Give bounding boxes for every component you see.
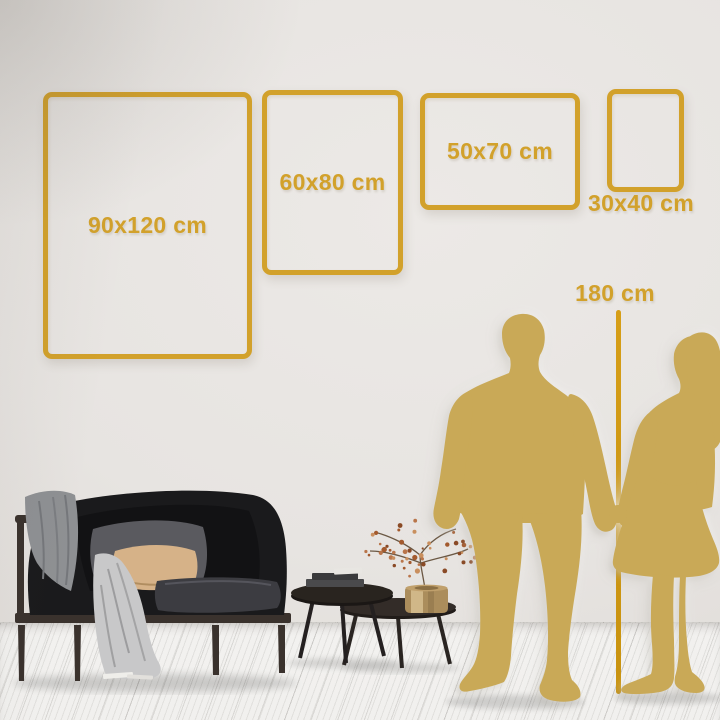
height-marker-line	[616, 310, 621, 694]
size-label-30x40: 30x40 cm	[576, 190, 706, 217]
branch	[370, 529, 468, 589]
coffee-table-large	[291, 583, 393, 663]
size-label-60x80: 60x80 cm	[280, 169, 386, 196]
size-label-50x70: 50x70 cm	[447, 138, 553, 165]
coffee-tables	[278, 505, 488, 675]
size-frame-60x80: 60x80 cm	[262, 90, 403, 275]
seat-cushion	[155, 577, 281, 612]
books-stack	[306, 567, 364, 587]
brass-vase	[405, 585, 448, 613]
sofa	[5, 485, 305, 695]
size-frame-50x70: 50x70 cm	[420, 93, 580, 210]
size-comparison-scene: 90x120 cm 60x80 cm 50x70 cm 30x40 cm 180…	[0, 0, 720, 720]
height-marker-label: 180 cm	[555, 280, 675, 307]
size-label-90x120: 90x120 cm	[88, 212, 207, 239]
size-frame-90x120: 90x120 cm	[43, 92, 252, 359]
size-frame-30x40	[607, 89, 684, 192]
blossom-flowers	[364, 514, 480, 577]
